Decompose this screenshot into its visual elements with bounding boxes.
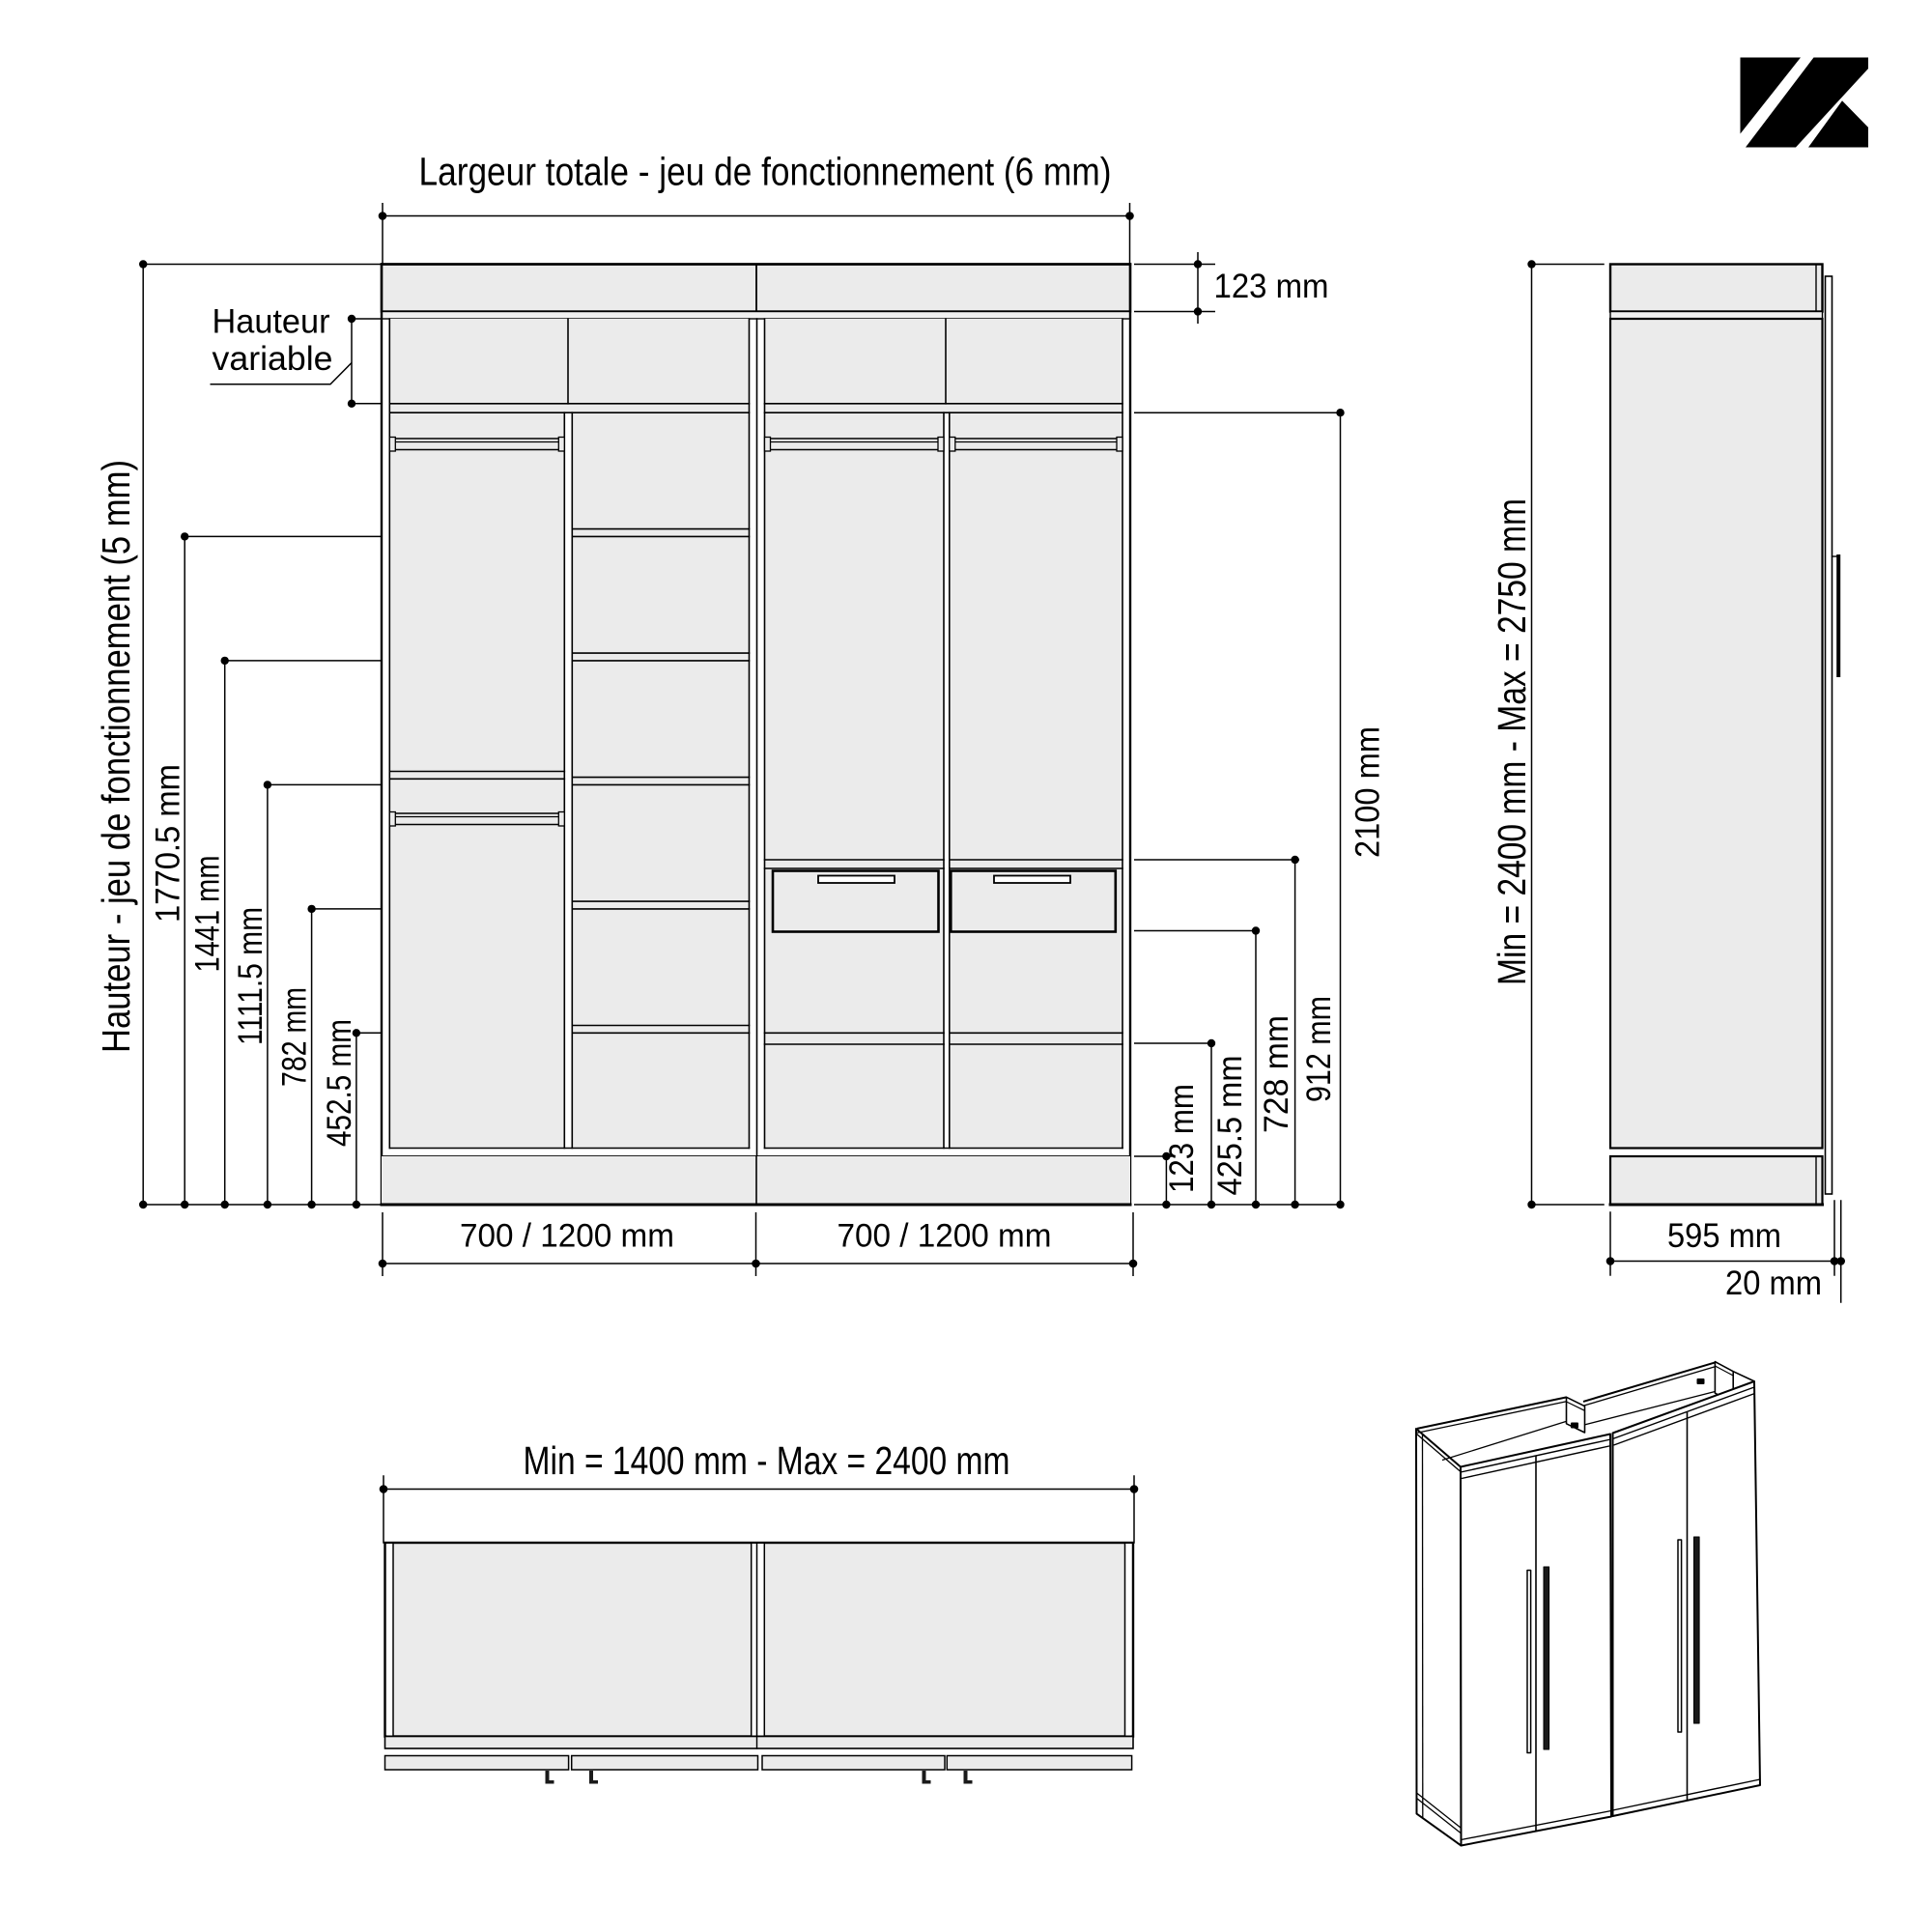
svg-text:700 / 1200 mm: 700 / 1200 mm	[460, 1218, 674, 1255]
svg-text:1441 mm: 1441 mm	[189, 856, 227, 973]
svg-text:123 mm: 123 mm	[1163, 1084, 1201, 1193]
svg-text:700 / 1200 mm: 700 / 1200 mm	[838, 1218, 1052, 1255]
svg-text:Hauteur - jeu de fonctionnemen: Hauteur - jeu de fonctionnement (5 mm)	[94, 460, 138, 1053]
svg-text:123 mm: 123 mm	[1214, 268, 1329, 305]
svg-text:Largeur totale - jeu de foncti: Largeur totale - jeu de fonctionnement (…	[419, 150, 1112, 194]
svg-text:1111.5 mm: 1111.5 mm	[232, 907, 270, 1045]
svg-text:452.5 mm: 452.5 mm	[321, 1019, 358, 1147]
svg-text:425.5 mm: 425.5 mm	[1211, 1056, 1249, 1196]
svg-text:912 mm: 912 mm	[1300, 996, 1338, 1102]
svg-text:728 mm: 728 mm	[1258, 1015, 1295, 1133]
svg-text:Min = 1400 mm - Max = 2400 mm: Min = 1400 mm - Max = 2400 mm	[524, 1438, 1010, 1483]
svg-text:Min = 2400 mm - Max = 2750 mm: Min = 2400 mm - Max = 2750 mm	[1490, 498, 1534, 985]
svg-text:variable: variable	[213, 340, 333, 378]
svg-text:595 mm: 595 mm	[1667, 1217, 1781, 1255]
svg-text:Hauteur: Hauteur	[213, 303, 330, 341]
svg-text:2100 mm: 2100 mm	[1350, 726, 1387, 858]
svg-text:20 mm: 20 mm	[1725, 1264, 1822, 1302]
svg-text:782 mm: 782 mm	[276, 987, 314, 1087]
svg-text:1770.5 mm: 1770.5 mm	[149, 764, 186, 923]
